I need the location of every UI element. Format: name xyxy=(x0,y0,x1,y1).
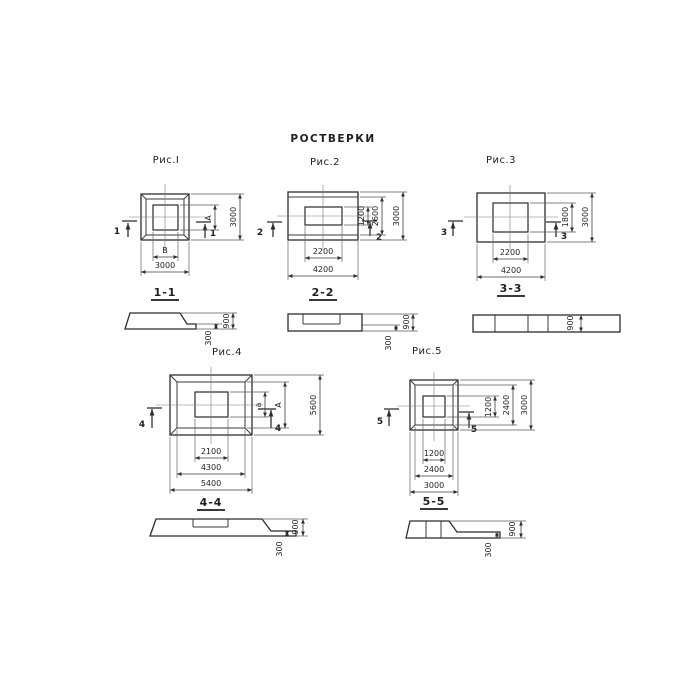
fig2-dim-outer-height: 3000 xyxy=(392,206,401,226)
fig2-cut-label-right: 2 xyxy=(376,233,382,243)
fig2: Рис.2 2 2 2200 4200 120 xyxy=(257,157,418,351)
fig5-dim-mid-height: 2400 xyxy=(502,395,511,415)
fig1-dim-outer-height: 3000 xyxy=(229,207,238,227)
fig4-section-label: 4-4 xyxy=(200,496,223,509)
fig1-cut-label-right: 1 xyxy=(210,229,216,239)
fig1: Рис.I 1 1 В 3000 xyxy=(114,155,244,346)
fig5-section-label: 5-5 xyxy=(423,495,446,508)
fig4-section-ledge: 300 xyxy=(275,541,284,556)
fig2-section-label: 2-2 xyxy=(312,286,335,299)
fig5-section: 5-5 300 900 xyxy=(406,495,526,558)
fig2-section: 2-2 300 900 xyxy=(288,286,418,351)
fig2-dim-inner-height: 1200 xyxy=(357,206,366,226)
fig4-section: 4-4 300 900 xyxy=(150,496,308,557)
fig5-dim-outer-width: 3000 xyxy=(424,481,444,490)
fig3-dim-outer-width: 4200 xyxy=(501,266,521,275)
fig2-dim-outer-width: 4200 xyxy=(313,265,333,274)
fig5: Рис.5 5 5 1200 2400 xyxy=(377,346,535,558)
fig3-section-height: 900 xyxy=(566,315,575,330)
fig4-section-height: 900 xyxy=(291,519,300,534)
fig5-dim-inner-width: 1200 xyxy=(424,449,444,458)
fig1-section: 1-1 300 900 xyxy=(125,286,237,346)
fig5-dimensions: 1200 2400 3000 1200 2400 3000 xyxy=(410,380,535,496)
fig1-dim-inner-width: В xyxy=(162,246,168,255)
fig2-label: Рис.2 xyxy=(310,157,340,168)
fig3-cut-label-right: 3 xyxy=(561,232,567,242)
fig3-dim-inner-height: 1800 xyxy=(561,207,570,227)
fig4-cut-label-left: 4 xyxy=(139,420,145,430)
fig2-dimensions: 2200 4200 1200 2600 3000 xyxy=(288,192,407,280)
fig4-dim-inner-width: 2100 xyxy=(201,447,221,456)
fig4: Рис.4 4 4 2100 4300 xyxy=(139,347,324,557)
fig3: Рис.3 3 3 2200 4200 1800 xyxy=(441,155,620,332)
fig3-label: Рис.3 xyxy=(486,155,516,166)
fig5-label: Рис.5 xyxy=(412,346,442,357)
fig3-plan-outline xyxy=(477,193,545,242)
fig5-section-ledge: 300 xyxy=(484,542,493,557)
fig3-dim-inner-width: 2200 xyxy=(500,248,520,257)
blueprint-svg: РОСТВЕРКИ Рис.I 1 1 В xyxy=(0,0,700,700)
fig3-section-label: 3-3 xyxy=(500,282,523,295)
fig4-dim-mid-height: А xyxy=(274,402,283,408)
fig4-cut-marks: 4 4 xyxy=(139,408,281,434)
fig4-dim-outer-height: 5600 xyxy=(309,395,318,415)
fig5-cut-label-left: 5 xyxy=(377,417,383,427)
fig4-dim-mid-width: 4300 xyxy=(201,463,221,472)
fig1-dim-outer-width: 3000 xyxy=(155,261,175,270)
fig2-section-height: 900 xyxy=(402,314,411,329)
fig1-label: Рис.I xyxy=(153,155,180,166)
fig2-section-ledge: 300 xyxy=(384,335,393,350)
fig3-dimensions: 2200 4200 1800 3000 xyxy=(477,193,596,281)
fig1-section-ledge: 300 xyxy=(204,330,213,345)
fig2-dim-mid-height: 2600 xyxy=(371,206,380,226)
fig3-dim-outer-height: 3000 xyxy=(581,207,590,227)
fig3-centerlines xyxy=(464,185,558,250)
fig5-dim-outer-height: 3000 xyxy=(520,395,529,415)
fig1-cut-label-left: 1 xyxy=(114,227,120,237)
fig5-cut-marks: 5 5 xyxy=(377,409,477,435)
fig1-section-height: 900 xyxy=(222,313,231,328)
fig1-dim-inner-height: А xyxy=(204,215,213,221)
fig4-label: Рис.4 xyxy=(212,347,242,358)
fig5-section-height: 900 xyxy=(508,521,517,536)
fig4-dim-outer-width: 5400 xyxy=(201,479,221,488)
fig5-dim-inner-height: 1200 xyxy=(484,397,493,417)
blueprint-page: РОСТВЕРКИ Рис.I 1 1 В xyxy=(0,0,700,700)
fig2-cut-label-left: 2 xyxy=(257,228,263,238)
fig4-cut-label-mid: 4 xyxy=(275,424,281,434)
fig5-dim-mid-width: 2400 xyxy=(424,465,444,474)
fig1-section-label: 1-1 xyxy=(154,286,177,299)
fig2-dim-inner-width: 2200 xyxy=(313,247,333,256)
fig3-cut-label-left: 3 xyxy=(441,228,447,238)
fig3-section: 3-3 900 xyxy=(473,282,620,332)
drawing-title: РОСТВЕРКИ xyxy=(290,133,375,145)
fig4-dim-inner-height: а xyxy=(254,402,263,407)
